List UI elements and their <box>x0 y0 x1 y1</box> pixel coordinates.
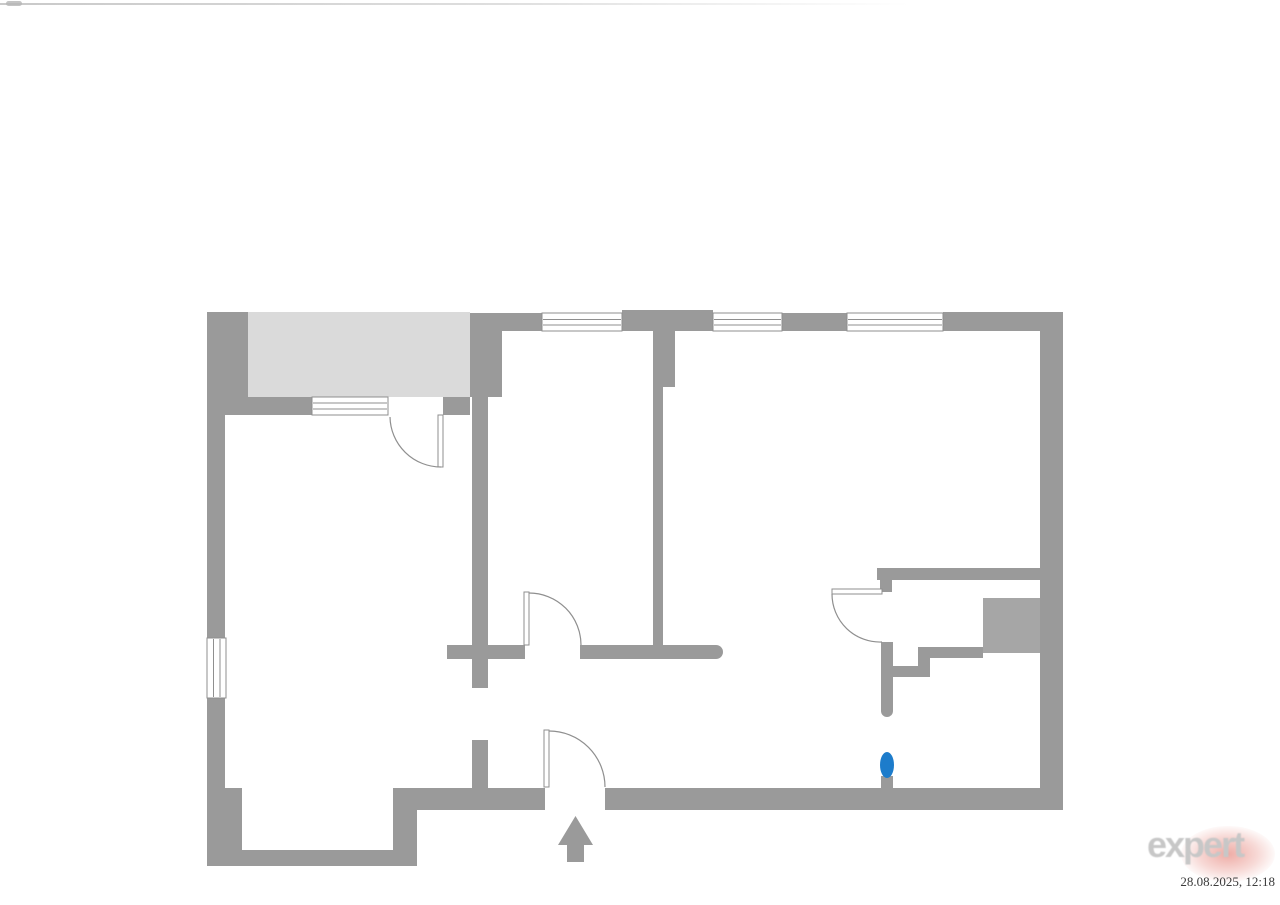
door-hall-middle-room <box>524 592 581 645</box>
door-balcony-room <box>390 415 443 467</box>
entrance-arrow-icon <box>558 816 593 862</box>
balcony <box>248 312 470 397</box>
scan-timestamp: 28.08.2025, 12:18 <box>1145 874 1275 890</box>
location-marker <box>880 752 894 778</box>
window-top-3 <box>847 313 943 331</box>
utility-shaft <box>983 598 1040 653</box>
door-entrance <box>544 730 605 787</box>
expert-logo: expert <box>1147 824 1243 866</box>
window-top-2 <box>713 313 782 331</box>
window-left-wall <box>207 638 226 698</box>
door-bathroom <box>832 589 882 642</box>
doors <box>390 415 882 787</box>
scanned-floor-plan-page: expert 28.08.2025, 12:18 <box>0 0 1280 905</box>
window-balcony-room <box>312 397 388 415</box>
window-top-1 <box>542 313 622 331</box>
brand-footer: expert 28.08.2025, 12:18 <box>1145 824 1278 896</box>
floor-plan <box>0 0 1280 905</box>
